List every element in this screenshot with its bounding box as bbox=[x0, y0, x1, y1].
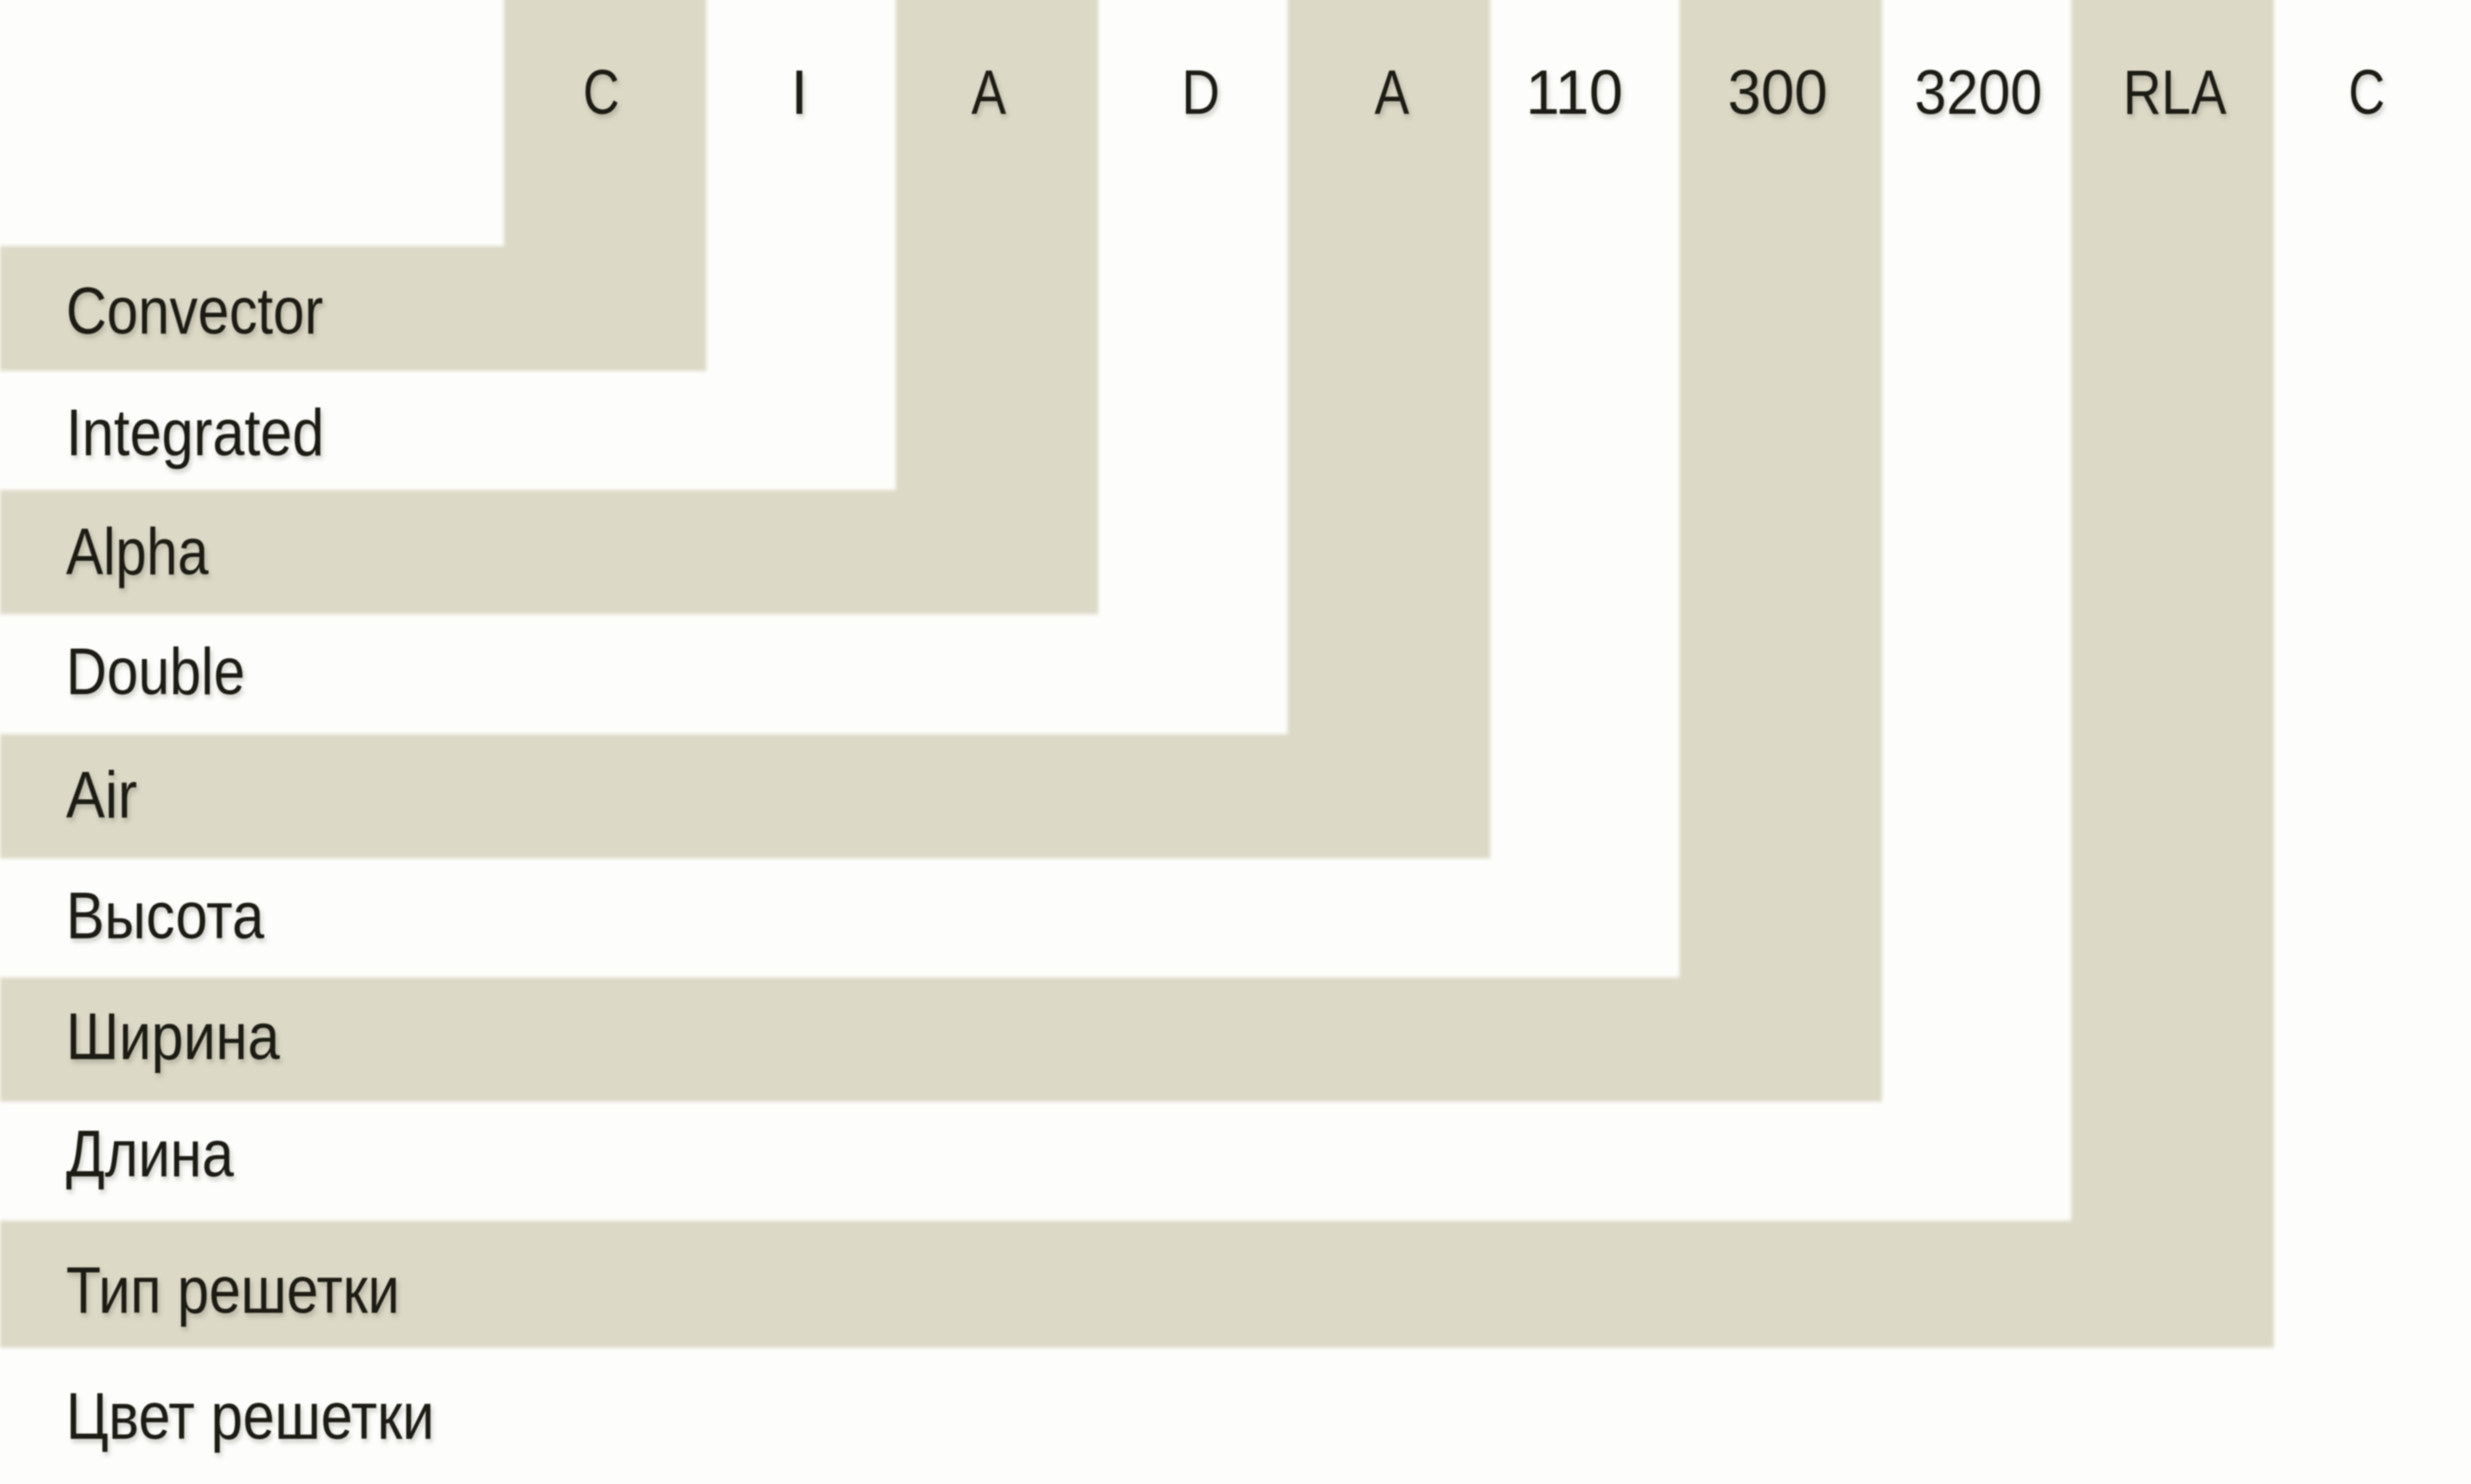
svg-text:D: D bbox=[1182, 58, 1220, 128]
svg-text:Ширина: Ширина bbox=[66, 1000, 281, 1074]
svg-text:3200: 3200 bbox=[1915, 58, 2043, 128]
svg-text:Длина: Длина bbox=[66, 1117, 235, 1191]
svg-text:110: 110 bbox=[1526, 58, 1623, 128]
svg-text:RLA: RLA bbox=[2123, 58, 2227, 128]
svg-text:Air: Air bbox=[66, 759, 137, 832]
svg-text:C: C bbox=[583, 58, 619, 128]
svg-text:Тип решетки: Тип решетки bbox=[66, 1254, 400, 1328]
svg-text:A: A bbox=[971, 58, 1006, 128]
svg-text:Double: Double bbox=[66, 635, 245, 709]
svg-text:C: C bbox=[2348, 58, 2385, 128]
svg-text:Alpha: Alpha bbox=[66, 515, 209, 589]
svg-text:Integrated: Integrated bbox=[66, 396, 324, 470]
svg-text:Convector: Convector bbox=[66, 275, 323, 348]
svg-text:I: I bbox=[791, 58, 808, 128]
svg-text:A: A bbox=[1375, 58, 1409, 128]
svg-text:300: 300 bbox=[1728, 58, 1828, 128]
svg-text:Цвет решетки: Цвет решетки bbox=[66, 1380, 434, 1454]
svg-text:Высота: Высота bbox=[66, 879, 265, 953]
